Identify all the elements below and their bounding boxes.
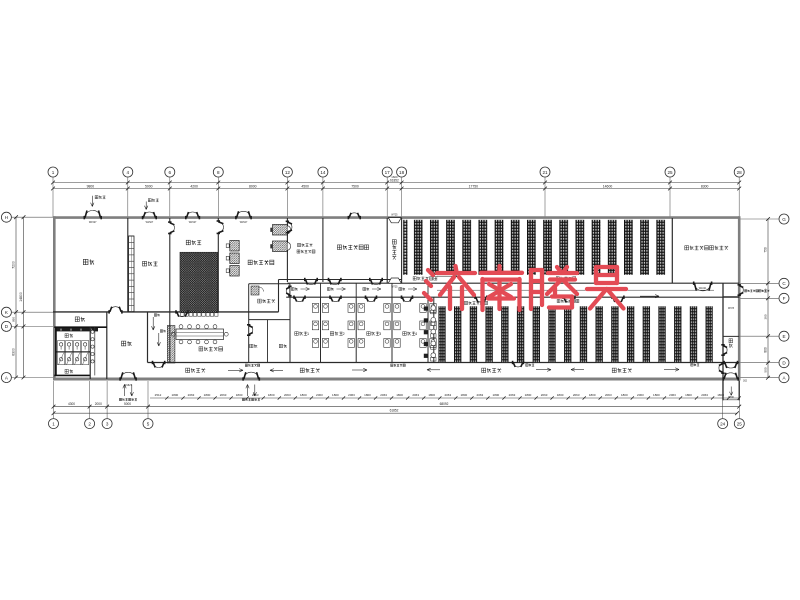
svg-text:380: 380 [764, 314, 768, 319]
svg-text:17750: 17750 [469, 184, 479, 188]
svg-text:2063: 2063 [316, 393, 323, 397]
svg-text:302: 302 [743, 380, 748, 383]
svg-text:6: 6 [169, 170, 172, 175]
svg-text:9800: 9800 [87, 184, 95, 188]
svg-text:1: 1 [307, 332, 309, 336]
svg-text:W1021: W1021 [699, 287, 707, 290]
svg-text:4: 4 [415, 332, 417, 336]
svg-text:24: 24 [720, 421, 726, 426]
svg-text:4300: 4300 [68, 402, 75, 406]
svg-text:2063: 2063 [701, 393, 708, 397]
svg-text:17: 17 [385, 170, 391, 175]
svg-text:2063: 2063 [348, 393, 355, 397]
svg-text:1600: 1600 [391, 175, 398, 179]
svg-text:W725: W725 [728, 308, 735, 310]
svg-text:2063: 2063 [637, 393, 644, 397]
svg-text:2063: 2063 [284, 393, 291, 397]
svg-text:12: 12 [285, 170, 291, 175]
svg-text:1800: 1800 [525, 393, 532, 397]
svg-text:4: 4 [127, 170, 130, 175]
svg-text:2063: 2063 [669, 393, 676, 397]
svg-text:1800: 1800 [621, 393, 628, 397]
svg-text:2: 2 [342, 332, 344, 336]
svg-text:7500: 7500 [351, 184, 359, 188]
svg-text:W725: W725 [391, 286, 398, 289]
svg-text:3: 3 [379, 332, 381, 336]
svg-text:8000: 8000 [249, 184, 257, 188]
svg-text:2063: 2063 [380, 393, 387, 397]
svg-text:800: 800 [764, 347, 768, 353]
svg-text:1800: 1800 [460, 393, 467, 397]
svg-text:H: H [5, 215, 8, 220]
svg-text:1800: 1800 [364, 393, 371, 397]
svg-text:W1527: W1527 [89, 221, 97, 224]
svg-text:W725: W725 [391, 213, 398, 216]
svg-text:25: 25 [737, 421, 743, 426]
svg-text:28: 28 [737, 170, 743, 175]
svg-text:1800: 1800 [653, 393, 660, 397]
svg-text:1800: 1800 [685, 393, 692, 397]
svg-text:1800: 1800 [428, 393, 435, 397]
svg-text:4200: 4200 [190, 184, 198, 188]
svg-text:950: 950 [12, 317, 16, 322]
svg-text:18: 18 [399, 170, 405, 175]
svg-text:1800: 1800 [300, 393, 307, 397]
svg-text:F: F [783, 296, 786, 301]
svg-text:2063: 2063 [188, 393, 195, 397]
svg-text:W1527: W1527 [240, 221, 248, 224]
svg-text:1800: 1800 [396, 393, 403, 397]
svg-text:4500: 4500 [301, 184, 309, 188]
svg-text:1800: 1800 [589, 393, 596, 397]
svg-text:W1527: W1527 [189, 221, 197, 224]
svg-text:1800: 1800 [557, 393, 564, 397]
svg-text:25: 25 [667, 170, 673, 175]
svg-text:2063: 2063 [605, 393, 612, 397]
svg-text:G: G [782, 217, 786, 222]
svg-text:8300: 8300 [701, 184, 709, 188]
svg-text:8: 8 [217, 170, 220, 175]
svg-text:1: 1 [52, 421, 55, 426]
svg-text:1800: 1800 [493, 393, 500, 397]
svg-text:W1527: W1527 [146, 221, 154, 224]
svg-text:14: 14 [320, 170, 326, 175]
svg-text:21: 21 [542, 170, 548, 175]
svg-text:500: 500 [764, 367, 768, 372]
svg-text:3: 3 [106, 421, 109, 426]
svg-text:2063: 2063 [541, 393, 548, 397]
svg-text:14800: 14800 [19, 292, 23, 302]
svg-text:1000: 1000 [728, 395, 734, 399]
svg-text:68092: 68092 [440, 402, 449, 406]
svg-text:7200: 7200 [12, 261, 16, 269]
svg-text:61852: 61852 [390, 409, 399, 413]
svg-text:1800: 1800 [236, 393, 243, 397]
svg-text:750: 750 [764, 247, 768, 253]
svg-text:2063: 2063 [412, 393, 419, 397]
svg-text:2063: 2063 [509, 393, 516, 397]
svg-text:2: 2 [88, 421, 91, 426]
svg-text:1800: 1800 [332, 393, 339, 397]
svg-text:5000: 5000 [145, 184, 153, 188]
svg-text:1800: 1800 [172, 393, 179, 397]
svg-text:2063: 2063 [573, 393, 580, 397]
svg-text:5: 5 [147, 421, 150, 426]
svg-text:14600: 14600 [603, 184, 613, 188]
svg-text:1: 1 [52, 170, 55, 175]
svg-text:1800: 1800 [204, 393, 211, 397]
svg-text:E: E [782, 334, 785, 339]
svg-text:6300: 6300 [12, 348, 16, 356]
svg-text:2000: 2000 [95, 402, 102, 406]
svg-text:2063: 2063 [220, 393, 227, 397]
svg-text:5000: 5000 [124, 402, 131, 406]
svg-text:1800: 1800 [268, 393, 275, 397]
svg-text:2063: 2063 [444, 393, 451, 397]
svg-text:2512: 2512 [155, 393, 162, 397]
svg-text:2063: 2063 [477, 393, 484, 397]
